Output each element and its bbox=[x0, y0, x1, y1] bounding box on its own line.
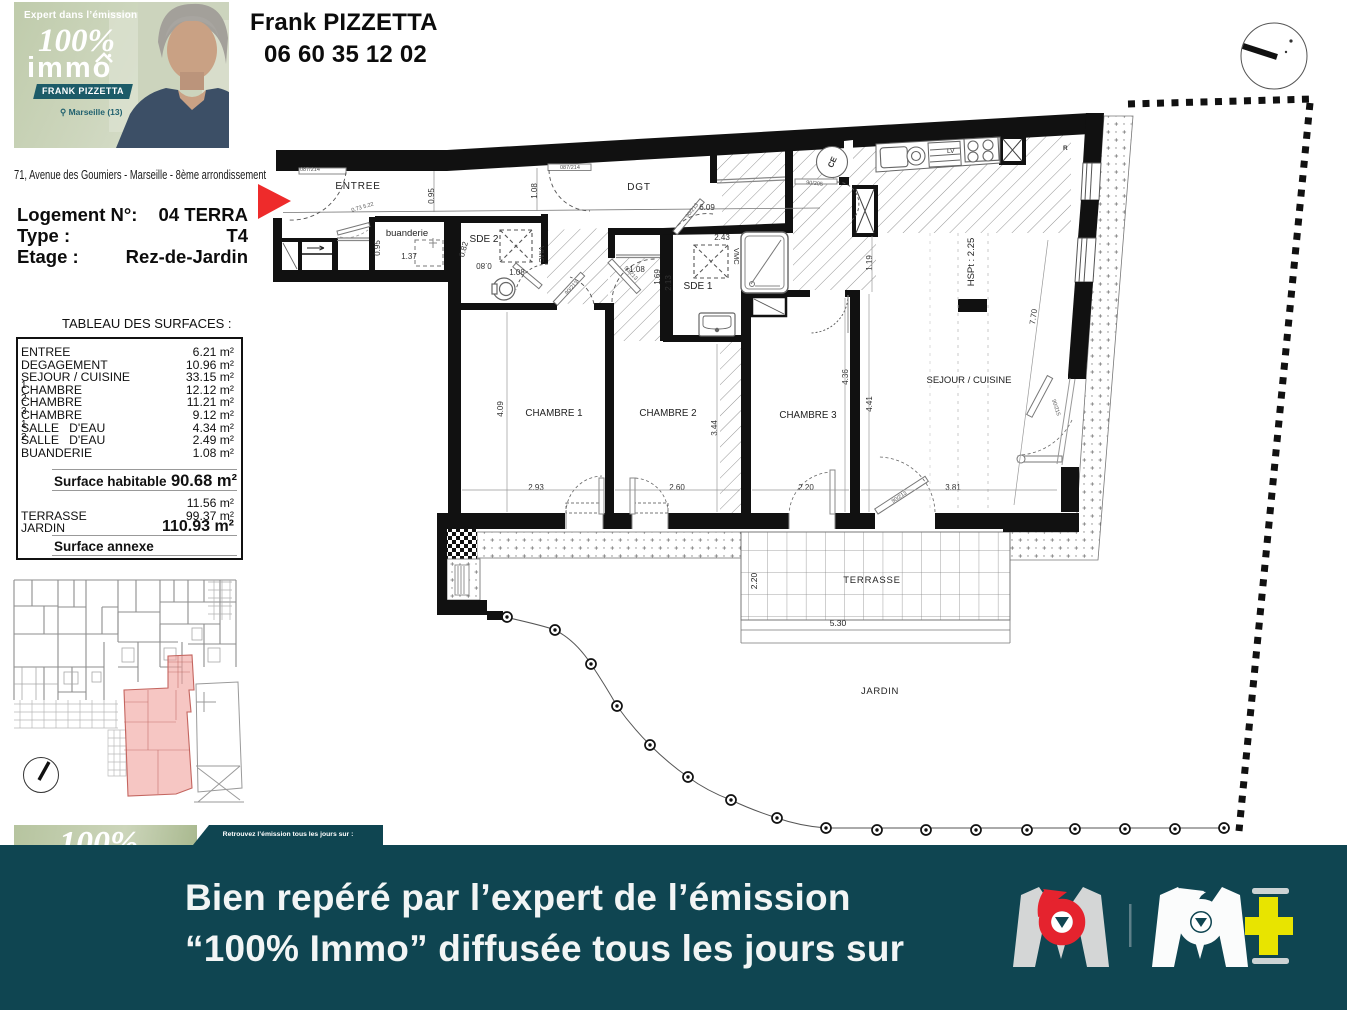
svg-text:0.95: 0.95 bbox=[427, 188, 436, 204]
svg-text:087/214: 087/214 bbox=[560, 165, 580, 171]
svg-text:2.20: 2.20 bbox=[798, 483, 814, 492]
svg-text:SDE 1: SDE 1 bbox=[684, 281, 713, 292]
svg-text:3.81: 3.81 bbox=[945, 483, 961, 492]
svg-text:0.80: 0.80 bbox=[476, 261, 492, 270]
svg-text:1.19: 1.19 bbox=[865, 255, 874, 271]
svg-text:3.44: 3.44 bbox=[710, 420, 719, 436]
svg-text:2.13: 2.13 bbox=[664, 275, 673, 291]
svg-text:ENTREE: ENTREE bbox=[335, 181, 380, 192]
svg-text:CHAMBRE 1: CHAMBRE 1 bbox=[525, 408, 582, 419]
svg-text:SDE 2: SDE 2 bbox=[470, 234, 499, 245]
svg-text:R: R bbox=[1063, 145, 1068, 152]
svg-text:4.09: 4.09 bbox=[496, 401, 505, 417]
svg-text:087/214: 087/214 bbox=[300, 167, 320, 173]
svg-text:VMC: VMC bbox=[732, 248, 741, 265]
svg-text:LV: LV bbox=[947, 148, 955, 155]
svg-text:2.43: 2.43 bbox=[714, 233, 730, 242]
svg-text:90/215: 90/215 bbox=[1050, 399, 1061, 417]
svg-text:4.36: 4.36 bbox=[841, 369, 850, 385]
svg-text:1.08: 1.08 bbox=[509, 268, 525, 277]
svg-text:6.09: 6.09 bbox=[699, 203, 715, 212]
svg-text:HSPt : 2.25: HSPt : 2.25 bbox=[966, 238, 977, 287]
svg-text:CHAMBRE 2: CHAMBRE 2 bbox=[639, 408, 696, 419]
svg-text:1.69: 1.69 bbox=[653, 269, 662, 285]
svg-text:JARDIN: JARDIN bbox=[861, 686, 899, 697]
svg-text:VMC: VMC bbox=[537, 246, 546, 263]
svg-text:DGT: DGT bbox=[627, 182, 651, 193]
svg-text:SEJOUR / CUISINE: SEJOUR / CUISINE bbox=[927, 375, 1012, 386]
svg-text:1.37: 1.37 bbox=[401, 252, 417, 261]
svg-text:2.93: 2.93 bbox=[528, 483, 544, 492]
svg-text:buanderie: buanderie bbox=[386, 228, 428, 239]
svg-text:2.60: 2.60 bbox=[669, 483, 685, 492]
svg-text:0.95: 0.95 bbox=[373, 240, 382, 256]
svg-text:2.20: 2.20 bbox=[749, 572, 759, 589]
svg-text:CHAMBRE 3: CHAMBRE 3 bbox=[779, 410, 837, 421]
svg-text:1.08: 1.08 bbox=[629, 265, 645, 274]
svg-text:TERRASSE: TERRASSE bbox=[843, 575, 901, 586]
svg-text:1.08: 1.08 bbox=[530, 183, 539, 199]
svg-text:4.41: 4.41 bbox=[865, 396, 874, 412]
svg-text:5.30: 5.30 bbox=[830, 618, 847, 628]
